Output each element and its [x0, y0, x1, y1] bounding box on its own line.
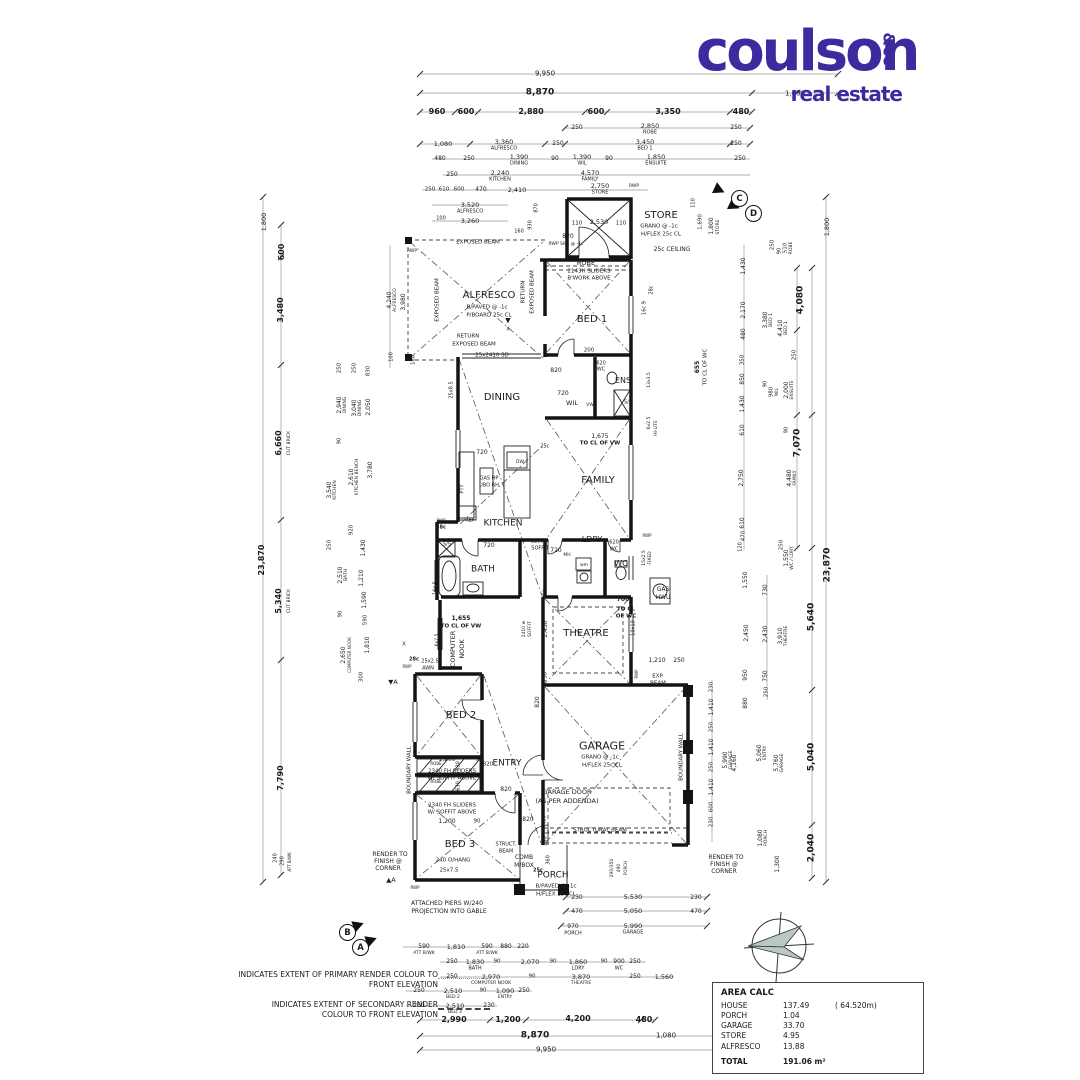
dim-label: 590	[481, 944, 492, 950]
dim-label: ENSUITE	[645, 162, 666, 167]
dim-label: BOUNDARY WALL	[407, 746, 413, 794]
dim-label: TO CL OF WC	[703, 349, 709, 386]
dim-label: 8,870	[521, 1032, 549, 1041]
dim-label: 290	[544, 836, 549, 846]
dim-label: 1200 w	[531, 540, 549, 545]
dim-label: 250	[792, 350, 798, 361]
dim-label: 2,990	[441, 1016, 466, 1024]
dim-label: 5,340	[275, 588, 283, 613]
dim-label: 600	[454, 187, 465, 193]
dim-label: 250	[352, 363, 358, 374]
dim-label: 600	[458, 108, 475, 116]
dim-label: GARAGE	[781, 754, 786, 773]
dim-label: W/ SOFFIT ABOVE	[428, 810, 477, 816]
dim-label: 655	[695, 361, 701, 374]
dim-label: 90	[480, 988, 487, 994]
dim-label: 250	[337, 363, 343, 374]
dim-label: 2410 w	[523, 621, 528, 638]
dim-label: 820	[550, 368, 561, 374]
dim-label: 250	[518, 988, 529, 994]
dim-label: COMB	[515, 855, 533, 861]
dim-label: HWU	[656, 595, 671, 601]
dim-label: 1,830	[466, 959, 485, 966]
area-total-row: TOTAL 191.06 m²	[721, 1057, 915, 1066]
dim-label: 2,880	[518, 108, 543, 116]
room-label-garage: GARAGE	[579, 741, 625, 752]
dim-label: PORCH	[564, 932, 581, 937]
area-total-value: 191.06 m²	[783, 1057, 826, 1066]
dim-label: 2,410	[508, 187, 527, 194]
dim-label: ROBE	[790, 242, 795, 255]
secondary-line-sample	[438, 1008, 490, 1010]
dim-label: M/BOX	[514, 863, 534, 869]
table-row: GARAGE 33.70	[721, 1021, 915, 1031]
room-label-kitchen: KITCHEN	[484, 520, 523, 529]
dim-label: CUT BRICK	[288, 431, 293, 455]
dim-label: B/PAVED @ -1c	[467, 305, 508, 311]
dim-label: 1,430	[740, 395, 746, 412]
dim-label: 600	[588, 108, 605, 116]
dim-label: 3,450	[636, 139, 655, 146]
dim-label: KITCHEN	[334, 480, 339, 500]
dim-label: 970	[567, 924, 578, 930]
dim-label: 250	[446, 172, 457, 178]
dim-label: GARAGE DOOR	[542, 789, 591, 796]
area-calc-title: AREA CALC	[721, 988, 915, 998]
dim-label: AWN	[422, 667, 434, 672]
dim-label: 470	[690, 909, 701, 915]
legend-note-text: INDICATES EXTENT OF PRIMARY RENDER COLOU…	[238, 970, 438, 989]
dim-label: SOFFIT	[531, 547, 548, 552]
dim-label: TO CL OF VW	[441, 624, 481, 630]
room-label-wil: WIL	[566, 400, 578, 407]
dim-label: 1,210	[359, 569, 365, 586]
dim-label: 28c	[436, 526, 446, 531]
dim-label: B/PAVED @ -1c	[536, 884, 577, 890]
dim-label: 1,550	[743, 571, 749, 588]
dim-label: 730	[543, 589, 549, 600]
dim-label: 3,520	[461, 202, 480, 209]
dim-label: 220	[517, 944, 528, 950]
dim-label: 360	[547, 855, 552, 865]
dim-label: VW	[586, 404, 594, 409]
dim-label: 1,655	[452, 616, 471, 622]
dim-label: STORE	[592, 191, 609, 196]
dim-label: THEATRE	[785, 626, 790, 646]
dim-label: WC / LDRY	[791, 546, 796, 570]
dim-label: FIXED	[649, 551, 654, 564]
dim-label: ATT B/WK	[476, 952, 498, 957]
dim-label: RWP	[407, 250, 417, 255]
dim-label: 250	[552, 141, 563, 147]
dim-label: 25x7.5	[439, 868, 458, 874]
dim-label: 25c CEILING	[654, 247, 691, 253]
dim-label: RWP	[411, 886, 420, 890]
dim-label: PORCH	[624, 861, 628, 875]
table-row: ALFRESCO 13.88	[721, 1042, 915, 1052]
dim-label: (AS PER ADDENDA)	[535, 798, 598, 805]
dim-label: EXPOSED BEAM	[456, 240, 500, 246]
room-label-bath: BATH	[471, 566, 495, 575]
dim-label: 2,970	[482, 974, 501, 981]
dim-label: DINING	[359, 400, 364, 416]
dim-label: STRUCT.	[496, 843, 517, 848]
dim-label: 110	[692, 198, 697, 208]
dim-label: 23,870	[824, 548, 833, 583]
dim-label: 1,410	[709, 738, 715, 755]
table-row: STORE 4.95	[721, 1031, 915, 1041]
dim-label: PORCH	[765, 830, 770, 846]
dim-label: HI-LITE	[655, 420, 660, 436]
dim-label: 110	[616, 221, 627, 227]
dim-label: 1,300	[775, 855, 781, 872]
legend-note-secondary: INDICATES EXTENT OF SECONDARY RENDER COL…	[238, 1000, 438, 1020]
dim-label: 250	[764, 687, 770, 698]
dim-label: ALFRESCO	[394, 288, 399, 312]
dim-label: 820	[500, 787, 511, 793]
area-row-label: STORE	[721, 1031, 783, 1041]
dim-label: H/FLEX 25c CL	[536, 892, 576, 898]
dim-label: 250	[629, 974, 640, 980]
dim-label: 960	[429, 108, 446, 116]
elevation-marker-a: A	[352, 939, 369, 956]
dim-label: 90	[474, 819, 481, 825]
dim-label: 250	[629, 959, 640, 965]
dim-label: 1,410	[709, 698, 715, 715]
dim-label: 1,430	[361, 539, 367, 556]
dim-label: 2,850	[641, 123, 660, 130]
legend-note-text: INDICATES EXTENT OF SECONDARY RENDER COL…	[272, 1000, 438, 1019]
dim-label: 900	[613, 959, 624, 965]
dim-label: COMPUTER	[450, 631, 457, 668]
dim-label: 290/350	[611, 859, 616, 878]
dim-label: X	[402, 642, 406, 648]
dim-label: ATTACHED PIERS W/240	[411, 901, 483, 907]
dim-label: ▼A	[388, 679, 397, 686]
room-label-bed2: BED 2	[446, 711, 476, 721]
dim-label: 3,350	[655, 108, 680, 116]
dim-label: 3,780	[368, 461, 374, 478]
dim-label: ALFRESCO	[491, 147, 517, 152]
dim-label: 1,800	[261, 213, 268, 232]
area-row-value: 4.95	[783, 1031, 835, 1041]
dim-label: 90	[785, 427, 790, 433]
dim-label: 1,200	[495, 1016, 520, 1024]
dim-label: 870	[535, 203, 540, 213]
dim-label: 90	[529, 974, 536, 980]
dim-label: GAS	[657, 587, 670, 593]
dim-label: 750	[543, 672, 549, 683]
dim-label: 100	[436, 217, 446, 222]
dim-label: 470	[475, 187, 486, 193]
dim-label: TO CL	[617, 607, 635, 613]
room-label-alfresco: ALFRESCO	[463, 291, 516, 301]
dim-label: ROBE	[577, 260, 595, 267]
dim-label: 1,860	[569, 959, 588, 966]
dim-label: 230	[690, 895, 701, 901]
dim-label: 250	[770, 240, 776, 251]
dim-label: TO CL OF VW	[580, 441, 620, 447]
dim-label: 3,260	[461, 218, 480, 225]
area-row-label: HOUSE	[721, 1001, 783, 1011]
dim-label: 28c	[650, 285, 655, 294]
dim-label: 250	[673, 658, 684, 664]
dim-label: 90	[605, 156, 613, 162]
area-row-value: 137.49	[783, 1001, 835, 1011]
dim-label: 610	[439, 187, 450, 193]
dim-label: H/FLEX 25c CL	[641, 232, 681, 238]
dim-label: UBO RH	[479, 484, 499, 489]
dim-label: BED 1	[770, 313, 775, 327]
dim-label: 5,050	[624, 908, 643, 915]
dim-label: ▲A	[386, 877, 395, 884]
dim-label: GARAGE	[623, 931, 644, 936]
dim-label: 250	[730, 141, 741, 147]
dim-label: 25x2.5	[421, 660, 438, 665]
dim-label: ENTRY	[498, 996, 513, 1001]
dim-label: 230	[571, 895, 582, 901]
dim-label: BED 1	[637, 147, 652, 152]
dim-label: 250	[463, 156, 474, 162]
dim-label: 630	[457, 781, 462, 791]
dim-label: 25x8.5	[450, 381, 455, 398]
dim-label: GRANO @ -1c	[581, 755, 619, 761]
area-calc-table: AREA CALC HOUSE 137.49 ( 64.520m) PORCH …	[712, 982, 924, 1074]
dim-label: 28c	[409, 658, 419, 663]
dim-label: GAS HP	[480, 477, 499, 482]
dim-label: 820	[483, 762, 494, 768]
dim-label: 2,530	[590, 219, 609, 226]
dim-label: 610	[740, 424, 746, 435]
dim-label: 620	[609, 541, 619, 546]
dim-label: 250	[730, 125, 741, 131]
dim-label: 630	[457, 761, 462, 771]
dim-label: LDRY	[572, 967, 585, 972]
elevation-marker-d: D	[745, 205, 762, 222]
dim-label: PTY	[461, 484, 466, 493]
dim-label: S/S	[443, 543, 451, 548]
dim-label: 3,980	[401, 293, 407, 310]
dim-label: 820	[522, 817, 533, 823]
dim-label: WIL	[776, 388, 781, 396]
dim-label: 350	[740, 355, 746, 366]
dim-label: 160	[412, 355, 417, 365]
dim-label: RWP	[635, 670, 639, 679]
dim-label: 7,790	[277, 765, 285, 790]
dim-label: 720	[476, 450, 487, 456]
room-label-ens: ENS	[615, 377, 631, 385]
dim-label: 950	[743, 669, 749, 680]
dim-label: 2,170	[741, 301, 747, 318]
floor-plan-page: { "colors":{"brand_purple":"#3b2b9e","li…	[0, 0, 1080, 1080]
dim-label: 1,200	[438, 819, 455, 825]
dim-label: 1,690	[698, 214, 704, 230]
dim-label: 110	[572, 221, 583, 227]
dim-label: WC	[597, 368, 605, 373]
area-row-value: 33.70	[783, 1021, 835, 1031]
dim-label: 90	[551, 156, 559, 162]
dim-label: B'WORK ABOVE	[567, 276, 610, 282]
dim-label: 720	[550, 548, 561, 554]
dim-label: 480	[434, 156, 445, 162]
dim-label: 10x10	[632, 620, 637, 636]
dim-label: RWP	[629, 185, 639, 190]
dim-label: 300	[359, 672, 365, 683]
room-label-theatre: THEATRE	[563, 629, 608, 639]
dim-label: 6,660	[275, 430, 283, 455]
dim-label: BOUNDARY WALL	[679, 733, 685, 781]
dim-label: RETURN	[521, 281, 527, 304]
dim-label: DINING	[510, 162, 528, 167]
dim-label: ▼	[505, 318, 510, 325]
dim-label: ROBE	[643, 131, 657, 136]
dim-label: 1,080	[656, 1033, 676, 1040]
dim-label: 820	[562, 234, 573, 240]
dim-label: 200	[584, 348, 595, 354]
area-row-label: ALFRESCO	[721, 1042, 783, 1052]
dim-label: 720	[483, 543, 494, 549]
dim-label: 100	[390, 352, 395, 362]
dim-label: 250	[446, 959, 457, 965]
dim-label: 9,950	[535, 71, 555, 78]
dim-label: 6x2.5	[648, 417, 653, 430]
dim-label: 850	[740, 373, 746, 384]
dim-label: 2,070	[521, 959, 540, 966]
area-row-label: PORCH	[721, 1011, 783, 1021]
dim-label: 2,450	[744, 624, 750, 641]
dim-label: X	[506, 328, 509, 333]
logo-suffix: &co	[880, 32, 899, 66]
dim-label: 730	[763, 584, 769, 595]
dim-label: SOFFIT	[529, 621, 534, 637]
dim-label: 90	[339, 611, 344, 617]
dim-label: ENTRY	[764, 746, 769, 761]
dim-label: 590	[363, 615, 369, 626]
dim-label: 230	[709, 682, 715, 693]
dim-label: ATT B/WK	[413, 952, 435, 957]
area-row-label: GARAGE	[721, 1021, 783, 1031]
dim-label: ROBE	[430, 780, 441, 784]
dim-label: H/FLEX 25c CL	[582, 763, 622, 769]
dim-label: 250	[734, 156, 745, 162]
dim-label: 290	[281, 856, 286, 866]
dim-label: WC	[610, 548, 618, 553]
dim-label: BATH	[468, 967, 481, 972]
dim-label: MH	[563, 554, 570, 559]
dim-label: 2,240	[491, 170, 510, 177]
dim-label: 750	[763, 670, 769, 681]
dim-label: REF	[465, 519, 475, 524]
dim-label: 90	[550, 959, 557, 965]
dim-label: 2143H SLIDERS	[567, 269, 610, 275]
table-row: HOUSE 137.49 ( 64.520m)	[721, 1001, 915, 1011]
dim-label: 5,640	[808, 603, 817, 631]
dim-label: CORNER	[711, 869, 737, 875]
dim-label: 470	[741, 531, 747, 542]
area-row-extra: ( 64.520m)	[835, 1001, 915, 1011]
dim-label: 250	[327, 540, 333, 551]
dim-label: 16c 9	[643, 301, 648, 315]
dim-label: 25x2410 SD	[475, 353, 509, 359]
dim-label: 8,870	[526, 89, 554, 98]
dim-label: DW	[516, 461, 524, 466]
dim-label: EXPOSED BEAM	[435, 278, 441, 322]
dim-label: 2,050	[366, 398, 372, 415]
dim-label: 920	[349, 525, 355, 536]
dim-label: 1,810	[365, 636, 371, 653]
logo-tagline: real estate	[791, 82, 902, 106]
dim-label: STORE	[717, 219, 722, 234]
dim-label: ALFRESCO	[457, 210, 483, 215]
dim-label: WIL	[577, 162, 586, 167]
dim-label: 2,430	[543, 620, 549, 637]
dim-label: 25c	[540, 445, 549, 450]
dim-label: 23,870	[258, 545, 266, 576]
dim-label: EXPOSED BEAM	[530, 270, 536, 314]
dim-label: 600	[278, 244, 286, 261]
compass-icon	[744, 912, 814, 982]
dim-label: 1,800	[824, 218, 831, 237]
dim-label: 830	[366, 366, 372, 377]
dim-label: 250	[779, 540, 785, 551]
dim-label: PROJECTION INTO GABLE	[411, 909, 486, 915]
dim-label: 160	[514, 230, 524, 235]
dim-label: RWP SILL @ -1c	[548, 243, 583, 248]
dim-label: 480	[733, 108, 750, 116]
dim-label: COMPUTER NOOK	[348, 637, 352, 673]
dim-label: 15x2.5	[643, 550, 648, 566]
dim-label: ROBE	[430, 762, 441, 766]
dim-label: 2,430	[763, 625, 769, 642]
dim-label: 610	[740, 517, 746, 528]
dim-label: BED 2	[446, 996, 460, 1001]
dim-label: 9,950	[536, 1047, 556, 1054]
dim-label: EXPOSED BEAM	[452, 342, 496, 348]
dim-label: NOOK	[459, 639, 466, 658]
room-label-bed3: BED 3	[445, 840, 475, 850]
dim-label: 1,560	[655, 974, 674, 981]
dim-label: RWP	[643, 534, 652, 538]
dim-label: 6x7.5	[436, 634, 441, 647]
dim-label: 470	[571, 909, 582, 915]
dim-label: 4,200	[565, 1015, 590, 1023]
dim-label: FAMILY	[794, 470, 799, 485]
dim-label: KITCHEN	[489, 178, 511, 183]
dim-label: STRUCTURAL BEAM	[573, 828, 627, 834]
dim-label: COMPUTER NOOK	[471, 982, 511, 987]
dim-label: KITCHEN BENCH	[356, 459, 361, 496]
dim-label: 2340 FH SLIDERS	[428, 769, 476, 775]
dim-label: DINING	[344, 397, 349, 413]
dim-label: 600	[709, 802, 715, 813]
dim-label: 700	[617, 597, 630, 603]
dim-label: 2,040	[808, 834, 817, 862]
dim-label: THEATRE	[571, 982, 591, 987]
dim-label: 1,590	[362, 591, 368, 608]
room-label-store: STORE	[644, 211, 678, 221]
area-row-value: 1.04	[783, 1011, 835, 1021]
legend-note-primary: INDICATES EXTENT OF PRIMARY RENDER COLOU…	[238, 970, 438, 990]
room-label-family: FAMILY	[581, 476, 615, 486]
dim-label: 1,410	[709, 778, 715, 795]
dim-label: 490	[543, 815, 548, 825]
dim-label: 5,530	[624, 894, 643, 901]
dim-label: 13x3.5	[648, 372, 653, 388]
dim-label: CORNER	[375, 866, 401, 872]
dim-label: 880	[743, 697, 749, 708]
room-label-wc: WC	[614, 560, 628, 568]
dim-label: WC	[615, 967, 623, 972]
